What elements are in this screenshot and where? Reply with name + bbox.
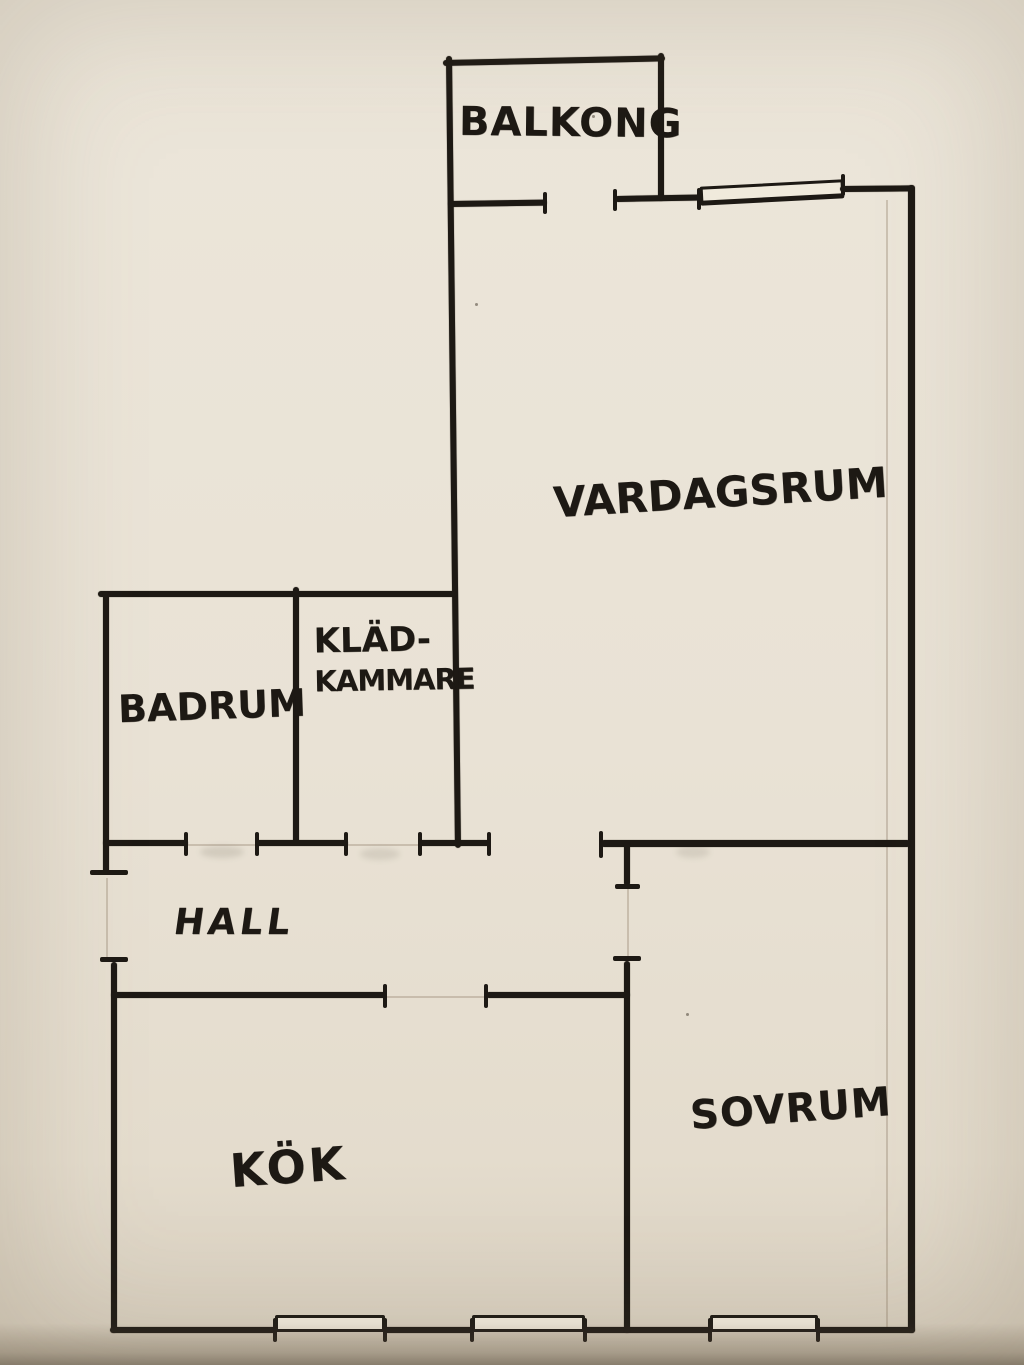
window-jamb <box>383 1318 387 1342</box>
wall-bottom-seg4 <box>816 1327 915 1333</box>
entry-jamb <box>90 870 128 875</box>
wall-badrum-bottom-seg1 <box>103 840 188 846</box>
window-kok-1 <box>275 1315 385 1332</box>
window-jamb <box>273 1318 277 1342</box>
smudge <box>200 846 244 858</box>
wall-sovrum-west <box>624 961 630 1333</box>
wall-sovrum-west-stub <box>624 843 630 886</box>
window-sovrum <box>710 1315 818 1332</box>
smudge <box>360 848 400 860</box>
wall-kok-left <box>111 962 117 1333</box>
smudge <box>676 846 710 858</box>
room-label-sovrum: SOVRUM <box>689 1079 893 1139</box>
wall-klad-bottom-seg <box>419 840 490 846</box>
room-label-balkong: BALKONG <box>459 99 683 147</box>
wall-badrum-top <box>98 591 456 597</box>
pencil-guideline <box>348 844 420 846</box>
pencil-guideline <box>886 200 888 1330</box>
wall-bottom-seg1 <box>110 1327 277 1333</box>
window-jamb <box>583 1318 587 1342</box>
wall-top-right <box>840 185 914 192</box>
wall-kok-top-seg1 <box>111 992 386 998</box>
wall-badrum-left <box>103 592 109 874</box>
wall-kok-top-seg2 <box>486 992 630 998</box>
window-jamb <box>816 1318 820 1342</box>
door-jamb <box>383 984 387 1008</box>
room-label-kladkammare: KLÄD- KAMMARE <box>313 619 475 702</box>
window-vardagsrum-north <box>700 179 845 206</box>
pencil-guideline <box>386 996 486 998</box>
wall-top-mid <box>615 194 704 202</box>
room-label-vardagsrum: VARDAGSRUM <box>552 458 889 527</box>
room-label-kladkammare-line2: KAMMARE <box>314 659 475 702</box>
window-jamb <box>697 188 701 210</box>
room-label-kladkammare-line1: KLÄD- <box>313 619 474 662</box>
door-jamb <box>344 832 348 856</box>
wall-left-vardagsrum <box>446 56 461 848</box>
wall-badrum-bottom-seg2 <box>256 840 348 846</box>
door-jamb <box>543 192 547 214</box>
wall-balcony-top <box>443 55 665 66</box>
wall-sovrum-top <box>601 840 910 847</box>
room-label-kok: KÖK <box>228 1136 349 1198</box>
pencil-guideline <box>627 888 629 960</box>
room-label-badrum: BADRUM <box>117 681 306 732</box>
window-kok-2 <box>472 1315 585 1332</box>
pencil-guideline <box>106 878 108 960</box>
door-jamb <box>487 832 491 856</box>
paper-speck <box>475 303 478 306</box>
wall-bottom-seg2 <box>383 1327 474 1333</box>
room-label-hall: HALL <box>171 902 297 943</box>
wall-right-outer <box>908 185 915 1333</box>
wall-top-balcony-door-left <box>448 200 547 207</box>
wall-bottom-seg3 <box>583 1327 712 1333</box>
window-jamb <box>470 1318 474 1342</box>
floorplan-paper: BALKONG VARDAGSRUM BADRUM KLÄD- KAMMARE … <box>0 0 1024 1365</box>
window-jamb <box>708 1318 712 1342</box>
door-jamb <box>184 832 188 856</box>
door-jamb <box>615 884 640 889</box>
paper-speck <box>686 1013 689 1016</box>
